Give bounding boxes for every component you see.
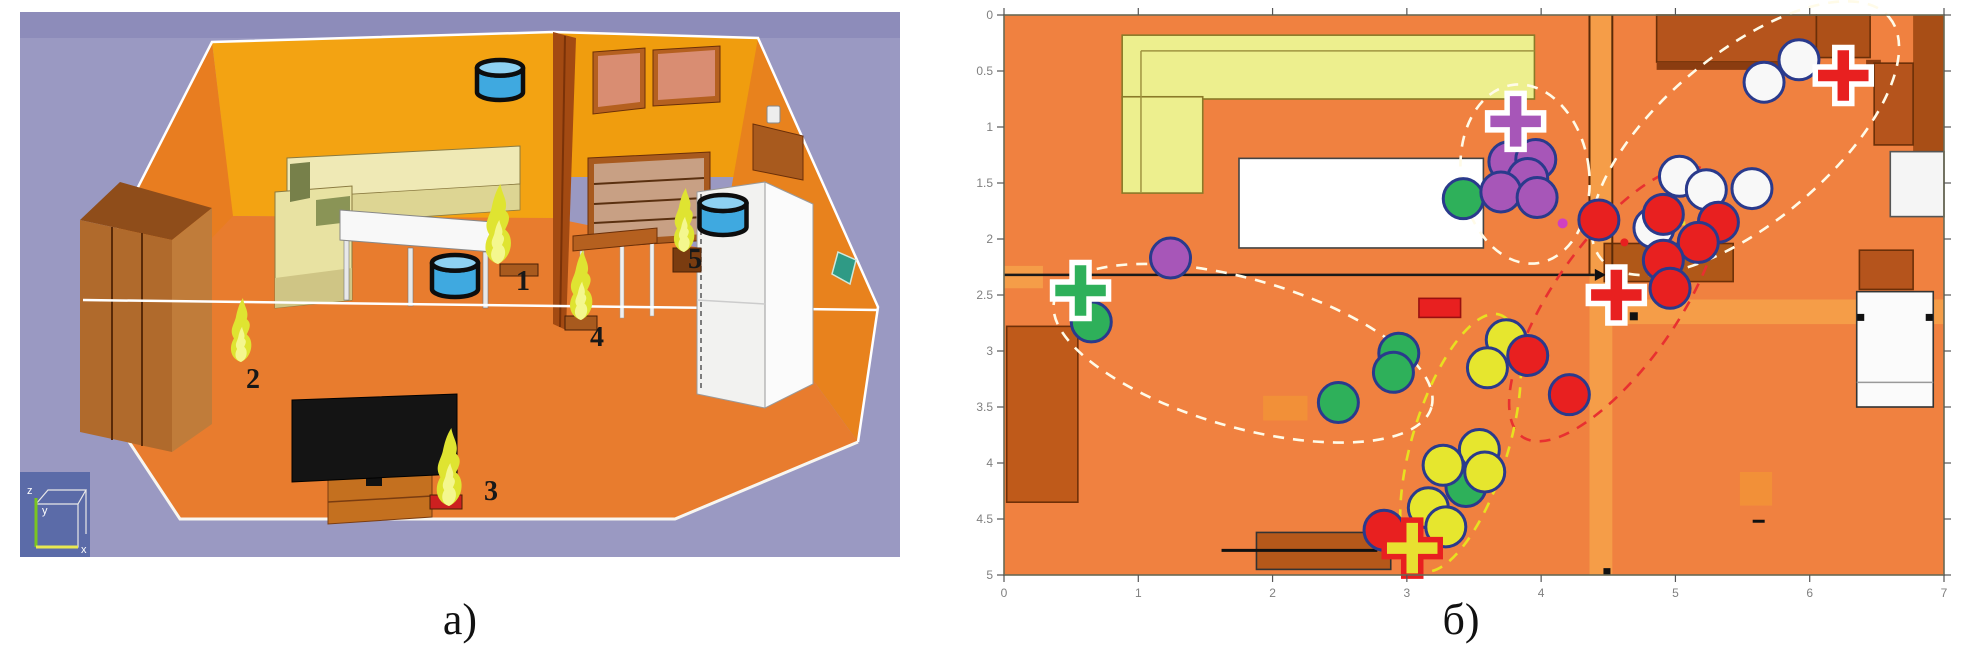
plot-svg: 00.511.522.533.544.5501234567	[960, 0, 1962, 600]
fire-number-label: 3	[484, 476, 498, 507]
purple-particle-marker	[1481, 172, 1521, 212]
y-tick-label: 5	[986, 568, 993, 582]
white-particle-marker	[1732, 169, 1772, 209]
jar	[767, 106, 780, 123]
fire-number-label: 1	[516, 266, 530, 297]
tv-screen	[292, 394, 457, 482]
y-tick-label: 1.5	[976, 176, 993, 190]
axis-label-x: x	[81, 544, 87, 556]
y-tick-label: 2	[986, 232, 993, 246]
water-cylinder-top	[700, 195, 747, 211]
axis-triad-icon: z y x	[20, 472, 90, 557]
left-room-svg: 12345 z y x	[20, 12, 900, 557]
map-right-window-lower	[1857, 292, 1934, 407]
yellow-particle-marker	[1467, 348, 1507, 388]
caption-a: а)	[20, 594, 900, 660]
map-wardrobe-left	[1007, 326, 1078, 502]
map-mark-dash	[1753, 520, 1765, 523]
right-panel-2d-map: 00.511.522.533.544.5501234567	[960, 0, 1962, 600]
map-door-zone-left	[1004, 266, 1043, 288]
green-particle-marker	[1318, 383, 1358, 423]
map-mark-square	[1603, 568, 1610, 575]
map-mark-square	[1857, 314, 1864, 321]
wardrobe-front	[80, 220, 172, 452]
y-tick-label: 0.5	[976, 64, 993, 78]
purple-particle-marker	[1517, 178, 1557, 218]
map-right-mid-cabinet	[1859, 250, 1913, 289]
map-mark-dot	[1620, 238, 1628, 246]
red-particle-marker	[1549, 375, 1589, 415]
table-leg	[344, 240, 349, 300]
yellow-particle-marker	[1423, 445, 1463, 485]
map-mark-dot	[1558, 218, 1568, 228]
map-sofa-vertical	[1122, 97, 1203, 193]
red-particle-marker	[1579, 200, 1619, 240]
y-tick-label: 3	[986, 344, 993, 358]
white-particle-marker	[1744, 62, 1784, 102]
wardrobe-side	[172, 208, 212, 452]
wall-cabinet-1-face	[598, 53, 640, 107]
y-tick-label: 1	[986, 120, 993, 134]
red-particle-marker	[1508, 335, 1548, 375]
map-right-window-upper	[1890, 152, 1944, 217]
map-red-rect	[1419, 298, 1461, 317]
green-particle-marker	[1443, 179, 1483, 219]
table-leg	[483, 252, 488, 308]
fire-number-label: 4	[590, 322, 604, 353]
water-cylinder-top	[432, 255, 478, 271]
caption-b: б)	[960, 594, 1962, 660]
fire-number-label: 2	[246, 364, 260, 395]
map-floor-patch-2	[1740, 472, 1772, 506]
y-tick-label: 4	[986, 456, 993, 470]
axis-label-y: y	[42, 505, 48, 517]
map-right-wall-strip	[1913, 15, 1944, 152]
wall-cabinet-2-face	[658, 50, 715, 100]
axis-label-z: z	[27, 485, 33, 497]
purple-particle-marker	[1151, 238, 1191, 278]
water-cylinder-top	[477, 60, 523, 76]
yellow-particle-marker	[1465, 452, 1505, 492]
left-panel-3d-room: 12345 z y x	[20, 12, 900, 557]
red-particle-marker	[1650, 268, 1690, 308]
y-tick-label: 3.5	[976, 400, 993, 414]
map-sofa-horizontal	[1122, 35, 1534, 99]
map-mark-square	[1926, 314, 1933, 321]
desk-leg	[650, 242, 654, 316]
table-leg	[408, 248, 413, 306]
green-particle-marker	[1373, 352, 1413, 392]
y-tick-label: 2.5	[976, 288, 993, 302]
map-floor-patch-1	[1263, 396, 1307, 421]
fridge-side	[765, 182, 813, 408]
red-particle-marker	[1643, 194, 1683, 234]
sofa-cushion-dark	[290, 162, 310, 202]
fire-number-label: 5	[688, 244, 702, 275]
map-mark-square	[1630, 312, 1638, 320]
y-tick-label: 4.5	[976, 512, 993, 526]
y-tick-label: 0	[986, 8, 993, 22]
